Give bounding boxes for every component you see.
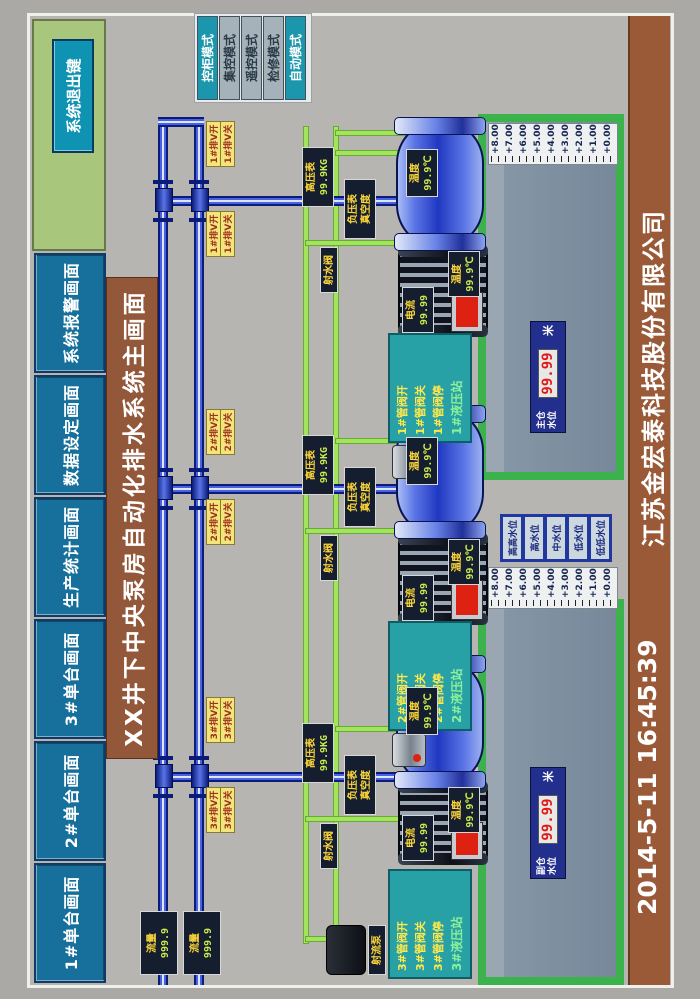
unit2-pump-temperature: 温度99.9℃ <box>406 437 438 485</box>
mode-button-central[interactable]: 集控模式 <box>219 16 240 100</box>
unit2-valve-open-indicator: 2#排V开 <box>206 499 221 545</box>
nav-label: 生产统计画面 <box>58 506 82 608</box>
mode-button-auto[interactable]: 自动模式 <box>285 16 306 100</box>
unit3-valve-open-indicator: 3#排V开 <box>206 697 221 743</box>
unit1-valve-close-indicator: 1#排V关 <box>220 211 235 257</box>
level-button-mid[interactable]: 中水位 <box>544 514 568 562</box>
scale-ticks <box>491 156 615 162</box>
unit1-flange <box>153 180 173 184</box>
unit1-valve-open-row: 1#管阀开 <box>394 341 412 435</box>
unit3-hydraulic-title: 3#液压站 <box>448 877 466 971</box>
nav-label: 2#单台画面 <box>58 754 82 849</box>
mode-button-cabinet[interactable]: 控柜模式 <box>197 16 218 100</box>
nav-button-pump2-screen[interactable]: 2#单台画面 <box>34 741 106 861</box>
unit2-motor-current: 电流99.99 <box>402 575 434 621</box>
unit3-valve-close-row: 3#管阀关 <box>412 877 430 971</box>
unit3-header1-valve-icon[interactable] <box>155 764 173 788</box>
level-button-low[interactable]: 低水位 <box>566 514 590 562</box>
unit1-hydraulic-title: 1#液压站 <box>448 341 466 435</box>
unit1-vacuum-gauge: 负压表真空度 <box>344 179 376 239</box>
unit3-flange <box>153 794 173 798</box>
system-exit-button[interactable]: 系统退出键 <box>52 39 94 153</box>
unit1-valve-open-indicator: 1#排V开 <box>206 121 221 167</box>
nav-label: 1#单台画面 <box>58 876 82 971</box>
jet-pump-label: 射流泵 <box>368 925 386 975</box>
unit3-valve-stop-row: 3#管阀停 <box>430 877 448 971</box>
mode-button-remote[interactable]: 遥控模式 <box>241 16 262 100</box>
level-button-ll[interactable]: 低低水位 <box>588 514 612 562</box>
unit2-hydraulic-pump-device <box>392 733 426 767</box>
unit3-pump-temperature: 温度99.9℃ <box>406 687 438 735</box>
discharge-header-pipe-2 <box>194 117 204 985</box>
sump-main-level-scale: +8.00 +7.00 +6.00 +5.00 +4.00 +3.00 +2.0… <box>488 123 618 165</box>
unit1-header2-valve-icon[interactable] <box>191 188 209 212</box>
unit3-valve-close-indicator: 3#排V关 <box>220 697 235 743</box>
unit2-green-drop-a <box>306 529 398 533</box>
hmi-scene-rotated: 1#单台画面 2#单台画面 3#单台画面 生产统计画面 数据设定画面 系统报警画… <box>0 0 700 999</box>
exit-label: 系统退出键 <box>63 59 84 134</box>
unit1-flange <box>153 218 173 222</box>
unit1-motor-temperature: 温度99.9℃ <box>448 251 480 297</box>
unit2-motor-temperature: 温度99.9℃ <box>448 539 480 585</box>
unit1-breaker-indicator[interactable] <box>452 293 482 331</box>
unit1-valve-close-indicator: 1#排V关 <box>220 121 235 167</box>
unit1-hydraulic-station-panel: 1#管阀开 1#管阀关 1#管阀停 1#液压站 <box>388 333 472 443</box>
nav-button-data-settings[interactable]: 数据设定画面 <box>34 375 106 495</box>
unit3-high-pressure-gauge: 高压表99.9KG <box>302 723 334 783</box>
company-name: 江苏金宏泰科技股份有限公司 <box>634 209 669 547</box>
unit2-hydraulic-title: 2#液压站 <box>448 629 466 723</box>
unit3-jet-valve-label: 射水阀 <box>320 823 338 869</box>
nav-button-system-alarm[interactable]: 系统报警画面 <box>34 253 106 373</box>
flow-meter-2: 流量 999.9 <box>183 911 221 975</box>
unit2-jet-valve-label: 射水阀 <box>320 535 338 581</box>
unit3-valve-close-indicator: 3#排V关 <box>220 787 235 833</box>
unit3-motor-current: 电流99.99 <box>402 815 434 861</box>
unit3-flange <box>189 756 209 760</box>
unit3-vacuum-gauge: 负压表真空度 <box>344 755 376 815</box>
flow-meter-1: 流量 999.9 <box>140 911 178 975</box>
unit3-hydraulic-station-panel: 3#管阀开 3#管阀关 3#管阀停 3#液压站 <box>388 869 472 979</box>
unit3-valve-open-indicator: 3#排V开 <box>206 787 221 833</box>
unit3-header2-valve-icon[interactable] <box>191 764 209 788</box>
screenshot-root: 1#单台画面 2#单台画面 3#单台画面 生产统计画面 数据设定画面 系统报警画… <box>0 0 700 999</box>
unit3-valve-open-row: 3#管阀开 <box>394 877 412 971</box>
unit1-pump-temperature: 温度99.9℃ <box>406 149 438 197</box>
level-button-high[interactable]: 高水位 <box>522 514 546 562</box>
level-button-hh[interactable]: 高高水位 <box>500 514 524 562</box>
unit1-high-pressure-gauge: 高压表99.9KG <box>302 147 334 207</box>
unit2-breaker-indicator[interactable] <box>452 581 482 619</box>
unit2-flange <box>189 468 209 472</box>
unit2-valve-close-indicator: 2#排V关 <box>220 499 235 545</box>
unit1-flange <box>189 180 209 184</box>
unit2-vacuum-gauge: 负压表真空度 <box>344 467 376 527</box>
unit2-header2-valve-icon[interactable] <box>191 476 209 500</box>
unit1-motor-current: 电流99.99 <box>402 287 434 333</box>
datetime-display: 2014-5-11 16:45:39 <box>633 639 662 915</box>
nav-label: 3#单台画面 <box>58 632 82 727</box>
unit1-jet-valve-label: 射水阀 <box>320 247 338 293</box>
jet-pump-device <box>326 925 366 975</box>
unit1-valve-stop-row: 1#管阀停 <box>430 341 448 435</box>
page-title: XX井下中央泵房自动化排水系统主画面 <box>106 277 158 759</box>
unit1-valve-open-indicator: 1#排V开 <box>206 211 221 257</box>
unit1-green-drop-a <box>306 241 398 245</box>
unit2-valve-close-indicator: 2#排V关 <box>220 409 235 455</box>
sump-aux-level-scale: +8.00 +7.00 +6.00 +5.00 +4.00 +3.00 +2.0… <box>488 567 618 609</box>
unit2-valve-open-indicator: 2#排V开 <box>206 409 221 455</box>
scale-ticks <box>491 600 615 606</box>
nav-label: 系统报警画面 <box>58 262 82 364</box>
nav-button-pump1-screen[interactable]: 1#单台画面 <box>34 863 106 983</box>
nav-label: 数据设定画面 <box>58 384 82 486</box>
unit1-header1-valve-icon[interactable] <box>155 188 173 212</box>
sump-main-level-display: 主仓水位 99.99 米 <box>530 321 566 433</box>
unit1-valve-close-row: 1#管阀关 <box>412 341 430 435</box>
unit2-high-pressure-gauge: 高压表99.9KG <box>302 435 334 495</box>
mode-button-maintenance[interactable]: 检修模式 <box>263 16 284 100</box>
nav-button-production-stats[interactable]: 生产统计画面 <box>34 497 106 617</box>
sump-aux-level-display: 副仓水位 99.99 米 <box>530 767 566 879</box>
nav-button-pump3-screen[interactable]: 3#单台画面 <box>34 619 106 739</box>
unit3-motor-temperature: 温度99.9℃ <box>448 787 480 833</box>
unit3-green-drop-a <box>306 817 398 821</box>
discharge-header-pipe-1 <box>158 117 168 985</box>
aux-level-readout: 99.99 <box>538 795 558 843</box>
header-end-connector-pipe <box>158 117 204 127</box>
main-level-readout: 99.99 <box>538 349 558 397</box>
